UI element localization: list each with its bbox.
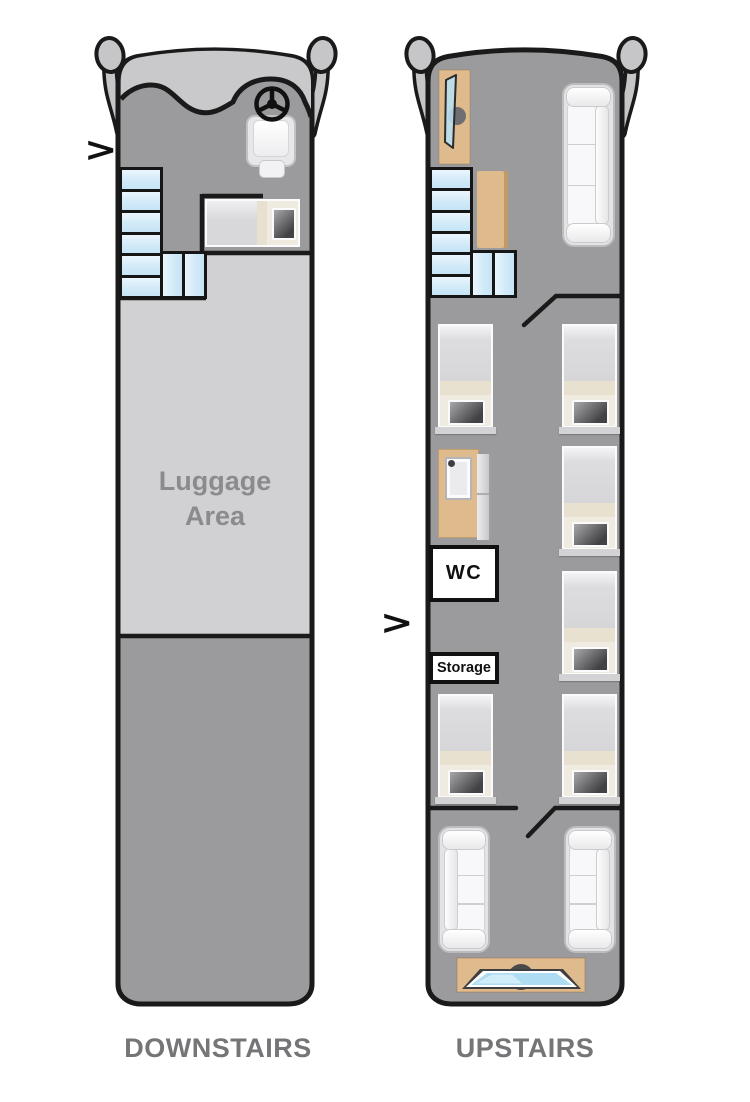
bus-floor-plan: Luggage Area > bbox=[0, 0, 750, 1102]
steering-wheel-icon bbox=[0, 0, 750, 1102]
